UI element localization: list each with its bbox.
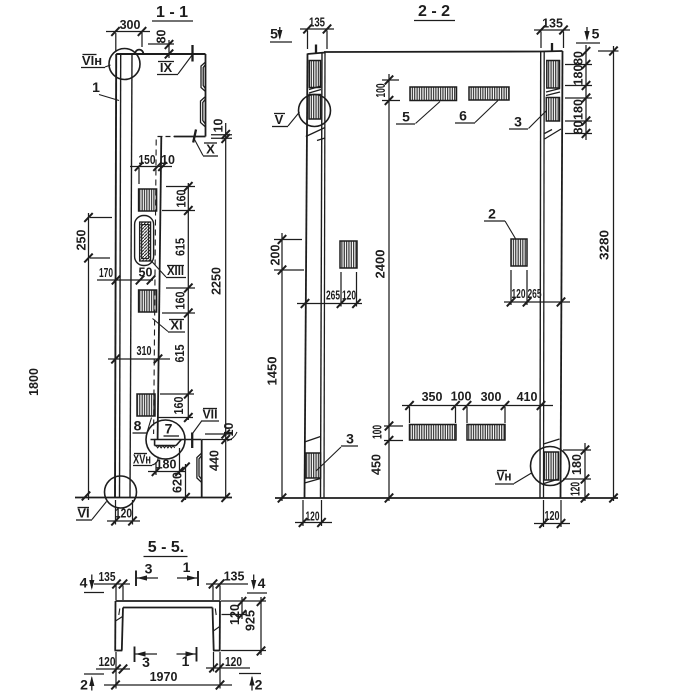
- svg-text:8: 8: [134, 418, 142, 434]
- svg-text:925: 925: [244, 610, 258, 631]
- svg-text:200: 200: [269, 245, 283, 266]
- svg-text:410: 410: [517, 390, 538, 404]
- svg-text:X: X: [206, 142, 215, 157]
- svg-text:120: 120: [99, 655, 116, 669]
- svg-text:1450: 1450: [266, 356, 280, 385]
- svg-text:5 - 5.: 5 - 5.: [148, 539, 184, 556]
- svg-text:160: 160: [175, 189, 189, 207]
- svg-text:135: 135: [309, 16, 325, 30]
- svg-text:180: 180: [570, 454, 584, 475]
- svg-text:50: 50: [139, 266, 153, 280]
- svg-text:100: 100: [451, 390, 472, 404]
- svg-text:80: 80: [155, 30, 169, 44]
- svg-text:160: 160: [174, 291, 188, 309]
- svg-text:170: 170: [99, 266, 113, 280]
- svg-text:5: 5: [592, 26, 600, 42]
- svg-text:450: 450: [370, 454, 384, 475]
- svg-text:100: 100: [374, 83, 388, 97]
- svg-text:2: 2: [255, 677, 263, 693]
- svg-text:80: 80: [572, 121, 586, 135]
- svg-text:620: 620: [171, 472, 185, 493]
- svg-text:1800: 1800: [27, 368, 41, 396]
- svg-text:120: 120: [228, 604, 242, 625]
- svg-text:1: 1: [92, 79, 100, 95]
- svg-text:310: 310: [137, 344, 152, 358]
- svg-text:2: 2: [488, 206, 496, 222]
- svg-text:440: 440: [208, 450, 222, 471]
- svg-text:5: 5: [402, 109, 410, 125]
- svg-text:135: 135: [224, 570, 245, 584]
- svg-text:120: 120: [306, 510, 320, 524]
- svg-text:4: 4: [258, 575, 266, 591]
- svg-text:135: 135: [542, 17, 563, 31]
- svg-text:100: 100: [371, 425, 385, 439]
- svg-text:120: 120: [225, 655, 242, 669]
- svg-text:10: 10: [222, 423, 236, 437]
- svg-text:1 - 1: 1 - 1: [156, 4, 188, 21]
- svg-text:3: 3: [145, 561, 153, 577]
- svg-text:180: 180: [572, 65, 586, 86]
- svg-text:350: 350: [422, 390, 443, 404]
- svg-text:3: 3: [346, 431, 354, 447]
- svg-text:300: 300: [481, 390, 502, 404]
- svg-text:615: 615: [173, 344, 187, 362]
- svg-text:3280: 3280: [598, 230, 612, 260]
- svg-text:2400: 2400: [374, 249, 388, 278]
- svg-text:7: 7: [165, 421, 173, 437]
- svg-text:IX: IX: [160, 60, 173, 75]
- svg-text:1970: 1970: [150, 670, 178, 684]
- svg-text:120: 120: [569, 482, 583, 496]
- svg-text:615: 615: [174, 238, 188, 256]
- svg-text:VIн: VIн: [82, 53, 102, 68]
- svg-text:180: 180: [572, 99, 586, 120]
- svg-text:10: 10: [212, 119, 226, 133]
- svg-text:V: V: [275, 112, 284, 127]
- svg-text:3: 3: [142, 654, 150, 670]
- svg-text:1: 1: [182, 653, 190, 669]
- svg-text:160: 160: [172, 396, 186, 414]
- svg-text:5: 5: [270, 26, 278, 42]
- svg-text:2: 2: [80, 677, 88, 693]
- svg-text:1: 1: [183, 559, 191, 575]
- svg-text:135: 135: [99, 570, 116, 584]
- svg-text:4: 4: [80, 575, 88, 591]
- svg-text:2 - 2: 2 - 2: [418, 3, 450, 20]
- svg-text:3: 3: [514, 114, 522, 130]
- svg-text:265: 265: [326, 289, 340, 303]
- svg-text:80: 80: [572, 51, 586, 65]
- svg-text:6: 6: [459, 108, 467, 124]
- svg-text:300: 300: [120, 18, 141, 32]
- svg-text:2250: 2250: [210, 267, 224, 295]
- svg-text:250: 250: [75, 230, 89, 251]
